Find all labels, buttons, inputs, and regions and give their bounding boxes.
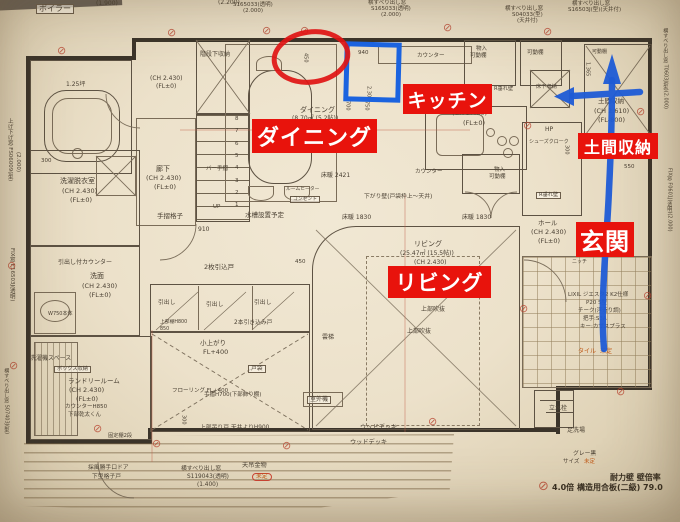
annotated-floor-plan-photo: ボイラー(1.900)(2.200)S165033(透明)(2.000)横すべり… xyxy=(0,0,680,522)
annotation-marks xyxy=(0,0,680,522)
label-dining: ダイニング xyxy=(252,119,377,153)
blue-arrow-left xyxy=(572,92,640,96)
red-ellipse-annotation xyxy=(271,27,351,87)
label-doma-storage: 土間収納 xyxy=(578,133,658,159)
arrowhead-up-icon xyxy=(603,54,621,84)
label-kitchen: キッチン xyxy=(403,84,492,114)
label-genkan: 玄関 xyxy=(576,222,634,257)
label-living: リビング xyxy=(388,266,491,298)
arrowhead-left-icon xyxy=(554,87,574,106)
blue-arrow-up xyxy=(603,80,612,349)
